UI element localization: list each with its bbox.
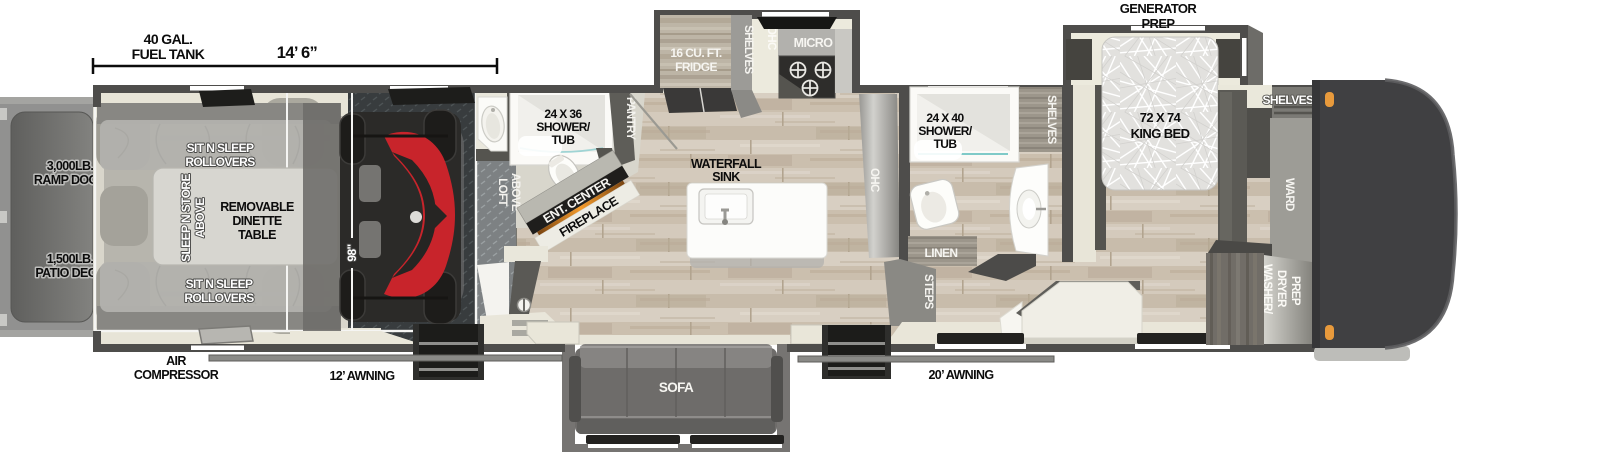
svg-text:DRYER: DRYER: [1275, 270, 1287, 308]
svg-text:STEPS: STEPS: [922, 274, 934, 310]
svg-text:TABLE: TABLE: [238, 228, 276, 242]
svg-text:LOFT: LOFT: [496, 178, 508, 206]
svg-text:SOFA: SOFA: [659, 380, 694, 395]
svg-text:SIT N SLEEP: SIT N SLEEP: [186, 277, 253, 291]
svg-text:98": 98": [345, 244, 359, 261]
svg-text:SHELVES: SHELVES: [1045, 95, 1057, 145]
svg-text:40 GAL.: 40 GAL.: [144, 31, 193, 47]
svg-text:REMOVABLE: REMOVABLE: [220, 200, 294, 214]
svg-text:FRIDGE: FRIDGE: [675, 60, 717, 74]
svg-text:14’ 6”: 14’ 6”: [277, 44, 318, 62]
svg-text:WARD: WARD: [1283, 178, 1295, 211]
svg-text:3,000LB.: 3,000LB.: [47, 159, 94, 173]
svg-text:1,500LB.: 1,500LB.: [47, 252, 94, 266]
svg-text:ROLLOVERS: ROLLOVERS: [185, 155, 255, 169]
svg-text:PREP: PREP: [1289, 276, 1301, 306]
svg-text:COMPRESSOR: COMPRESSOR: [134, 368, 219, 382]
svg-text:TUB: TUB: [552, 133, 576, 147]
svg-text:12’ AWNING: 12’ AWNING: [329, 369, 394, 383]
svg-text:ROLLOVERS: ROLLOVERS: [184, 291, 254, 305]
svg-text:KING BED: KING BED: [1131, 126, 1190, 141]
svg-text:AIR: AIR: [166, 354, 186, 368]
svg-text:PREP: PREP: [1141, 16, 1175, 31]
svg-text:WATERFALL: WATERFALL: [691, 157, 762, 171]
svg-text:16 CU. FT.: 16 CU. FT.: [670, 46, 722, 60]
svg-text:SINK: SINK: [712, 170, 740, 184]
svg-text:SLEEP N STORE: SLEEP N STORE: [179, 174, 193, 262]
svg-text:24 X 40: 24 X 40: [926, 111, 964, 125]
svg-text:20’ AWNING: 20’ AWNING: [928, 368, 993, 382]
svg-text:DINETTE: DINETTE: [232, 214, 282, 228]
svg-text:SIT N SLEEP: SIT N SLEEP: [187, 141, 254, 155]
svg-text:FUEL TANK: FUEL TANK: [132, 46, 205, 62]
svg-text:ABOVE: ABOVE: [509, 173, 521, 212]
svg-text:OHC: OHC: [765, 26, 777, 50]
svg-text:OHC: OHC: [868, 168, 880, 192]
svg-text:SHOWER/: SHOWER/: [918, 124, 972, 138]
svg-text:PANTRY: PANTRY: [624, 97, 636, 140]
svg-text:LINEN: LINEN: [924, 246, 957, 260]
svg-text:SHELVES: SHELVES: [1263, 93, 1315, 107]
svg-text:SHOWER/: SHOWER/: [536, 120, 590, 134]
svg-text:MICRO: MICRO: [794, 36, 834, 50]
svg-text:72 X 74: 72 X 74: [1140, 110, 1182, 125]
svg-text:24 X 36: 24 X 36: [544, 107, 582, 121]
svg-text:GENERATOR: GENERATOR: [1120, 1, 1198, 16]
svg-text:SHELVES: SHELVES: [742, 25, 754, 75]
svg-text:WASHER/: WASHER/: [1261, 264, 1273, 315]
svg-text:TUB: TUB: [934, 137, 958, 151]
svg-text:ABOVE: ABOVE: [193, 198, 207, 238]
